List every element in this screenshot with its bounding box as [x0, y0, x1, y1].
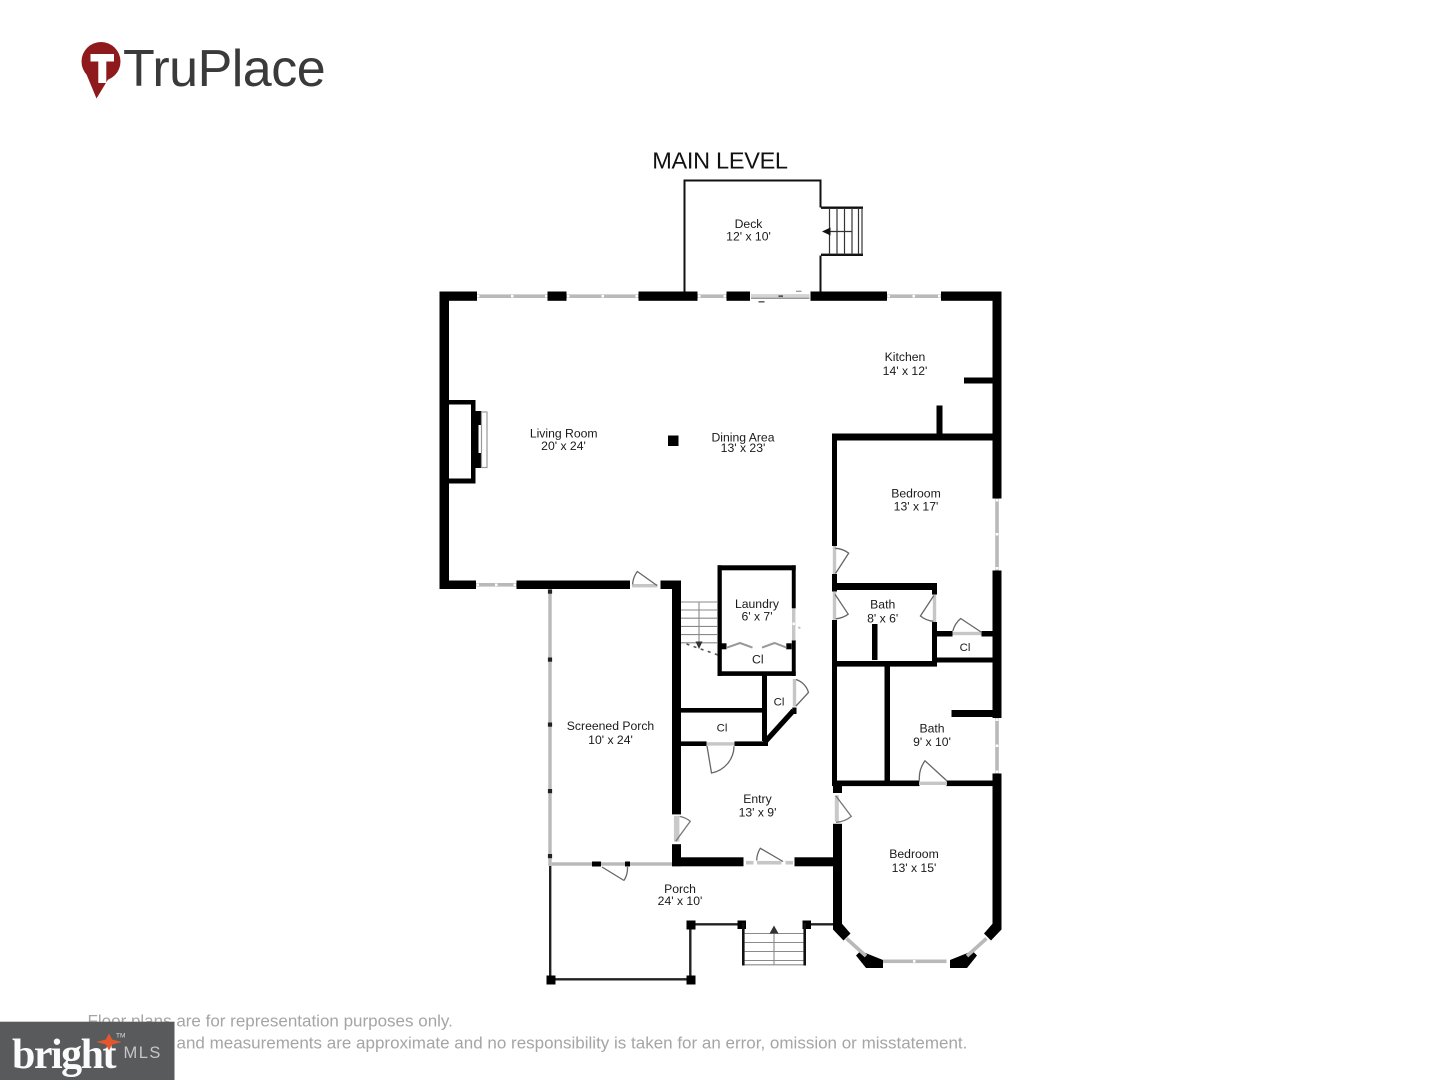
svg-text:bright: bright — [12, 1032, 117, 1078]
svg-text:TM: TM — [116, 1033, 125, 1040]
svg-text:20' x 24': 20' x 24' — [541, 439, 586, 453]
svg-text:TruPlace: TruPlace — [123, 40, 325, 98]
svg-text:24' x 10': 24' x 10' — [658, 894, 703, 908]
svg-text:9' x 10': 9' x 10' — [913, 735, 951, 749]
svg-text:13' x 15': 13' x 15' — [892, 861, 937, 875]
svg-text:Bedroom: Bedroom — [891, 487, 940, 501]
svg-text:Screened Porch: Screened Porch — [567, 719, 654, 733]
svg-text:and measurements are approxima: and measurements are approximate and no … — [177, 1034, 968, 1053]
svg-text:13' x 23': 13' x 23' — [721, 441, 766, 455]
svg-text:13' x 17': 13' x 17' — [894, 500, 939, 514]
svg-text:MAIN LEVEL: MAIN LEVEL — [652, 148, 788, 174]
svg-text:Bedroom: Bedroom — [889, 847, 938, 861]
svg-text:Cl: Cl — [717, 723, 728, 735]
svg-text:14' x 12': 14' x 12' — [883, 364, 928, 378]
svg-text:Cl: Cl — [774, 697, 785, 709]
svg-text:Bath: Bath — [919, 722, 944, 736]
svg-text:8' x 6': 8' x 6' — [867, 611, 898, 625]
svg-text:MLS: MLS — [124, 1044, 162, 1062]
svg-text:10' x 24': 10' x 24' — [588, 733, 633, 747]
svg-text:Cl: Cl — [960, 642, 971, 654]
svg-text:6' x 7': 6' x 7' — [741, 610, 772, 624]
svg-text:Kitchen: Kitchen — [885, 350, 926, 364]
svg-text:Entry: Entry — [743, 792, 772, 806]
svg-text:12' x 10': 12' x 10' — [726, 230, 771, 244]
svg-text:13' x 9': 13' x 9' — [739, 805, 777, 819]
svg-text:Bath: Bath — [870, 598, 895, 612]
svg-text:Cl: Cl — [752, 652, 764, 666]
